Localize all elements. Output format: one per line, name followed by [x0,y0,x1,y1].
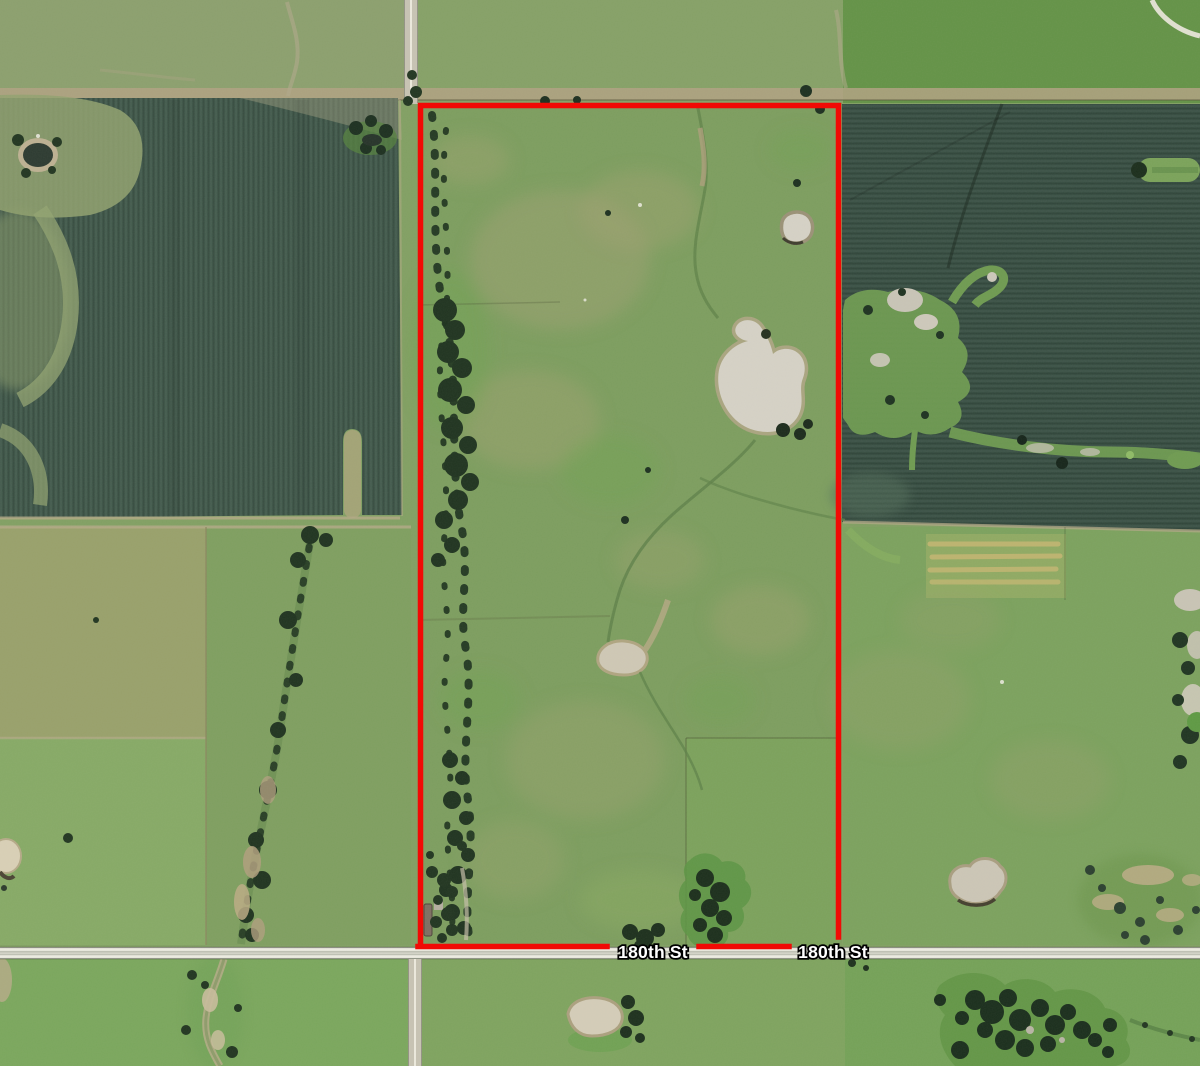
photo-grain-overlay [0,0,1200,1066]
map-rendering: 180th St 180th St [0,0,1200,1066]
road-label-180th-st-west: 180th St [618,942,688,962]
satellite-map-canvas[interactable]: 180th St 180th St [0,0,1200,1066]
road-label-180th-st-east: 180th St [798,942,868,962]
